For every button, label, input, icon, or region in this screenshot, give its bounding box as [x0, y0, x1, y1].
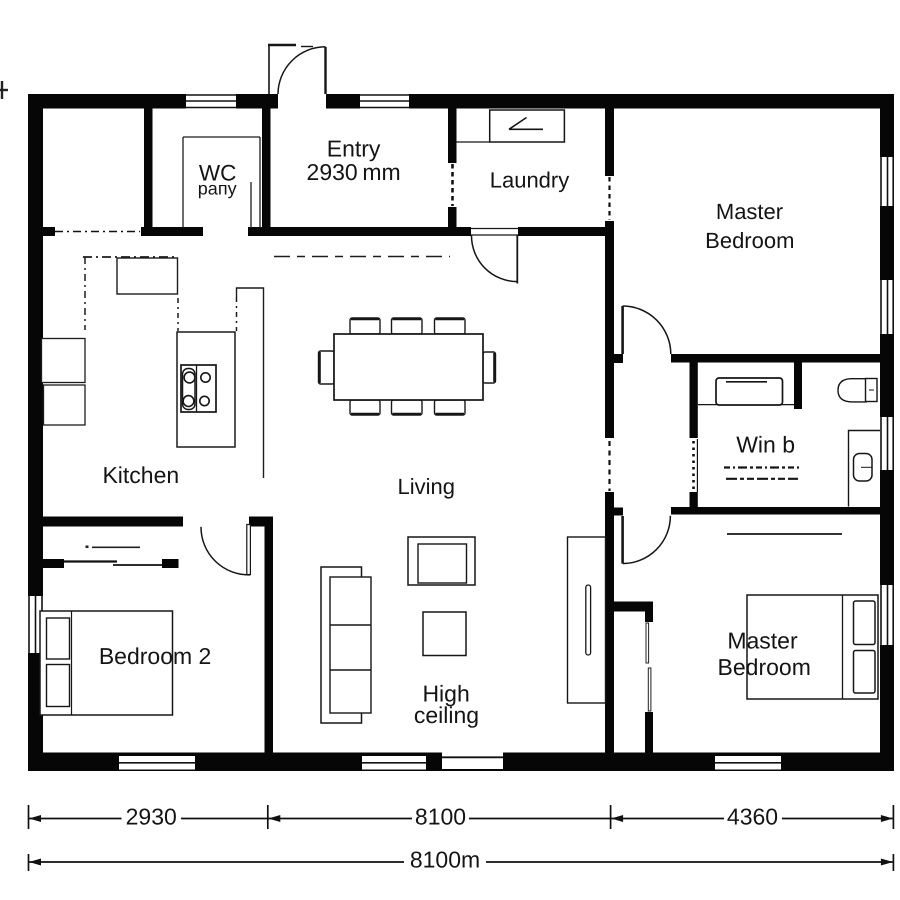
- svg-text:Laundry: Laundry: [490, 168, 570, 193]
- svg-text:Master: Master: [727, 628, 798, 654]
- svg-text:Entry: Entry: [327, 136, 381, 162]
- svg-text:Kitchen: Kitchen: [102, 462, 179, 488]
- svg-text:Master: Master: [716, 199, 783, 224]
- svg-text:ceiling: ceiling: [414, 702, 479, 728]
- svg-text:2930 mm: 2930 mm: [307, 159, 401, 185]
- svg-text:8100m: 8100m: [410, 847, 480, 873]
- svg-text:8100: 8100: [415, 804, 466, 830]
- svg-text:Bedroom: Bedroom: [718, 654, 811, 680]
- svg-text:Living: Living: [398, 474, 455, 499]
- svg-text:Bedroom 2: Bedroom 2: [99, 643, 212, 669]
- svg-text:2930: 2930: [126, 804, 177, 830]
- svg-text:Bedroom: Bedroom: [705, 228, 794, 253]
- svg-text:Win b: Win b: [736, 432, 795, 458]
- svg-text:4360: 4360: [727, 804, 778, 830]
- svg-text:paпy: paпy: [198, 179, 237, 199]
